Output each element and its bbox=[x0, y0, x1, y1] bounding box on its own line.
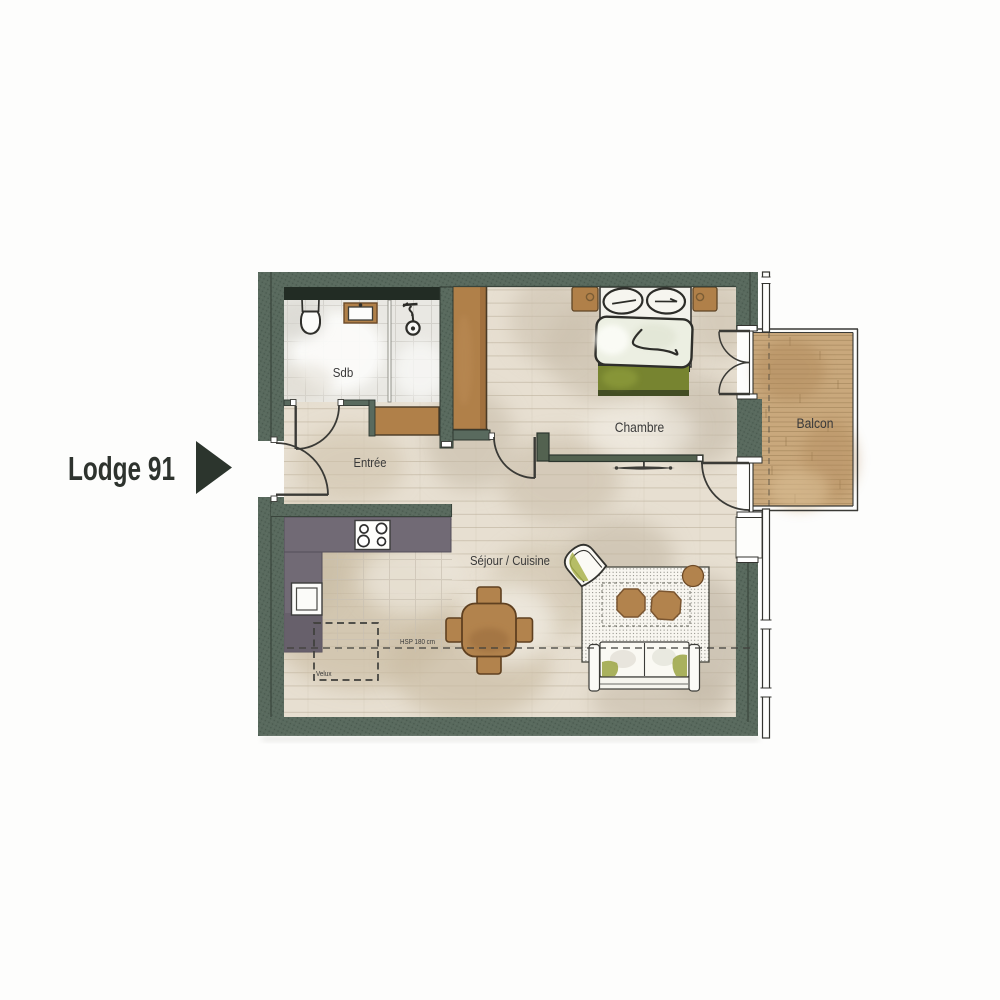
svg-text:Chambre: Chambre bbox=[615, 419, 665, 435]
svg-text:HSP 180 cm: HSP 180 cm bbox=[400, 637, 435, 646]
svg-text:Séjour / Cuisine: Séjour / Cuisine bbox=[470, 553, 550, 568]
svg-text:Sdb: Sdb bbox=[333, 365, 354, 380]
svg-text:Lodge 91: Lodge 91 bbox=[68, 450, 175, 487]
svg-text:Entrée: Entrée bbox=[354, 455, 387, 470]
svg-text:Velux: Velux bbox=[316, 669, 332, 678]
svg-text:Balcon: Balcon bbox=[797, 416, 834, 431]
